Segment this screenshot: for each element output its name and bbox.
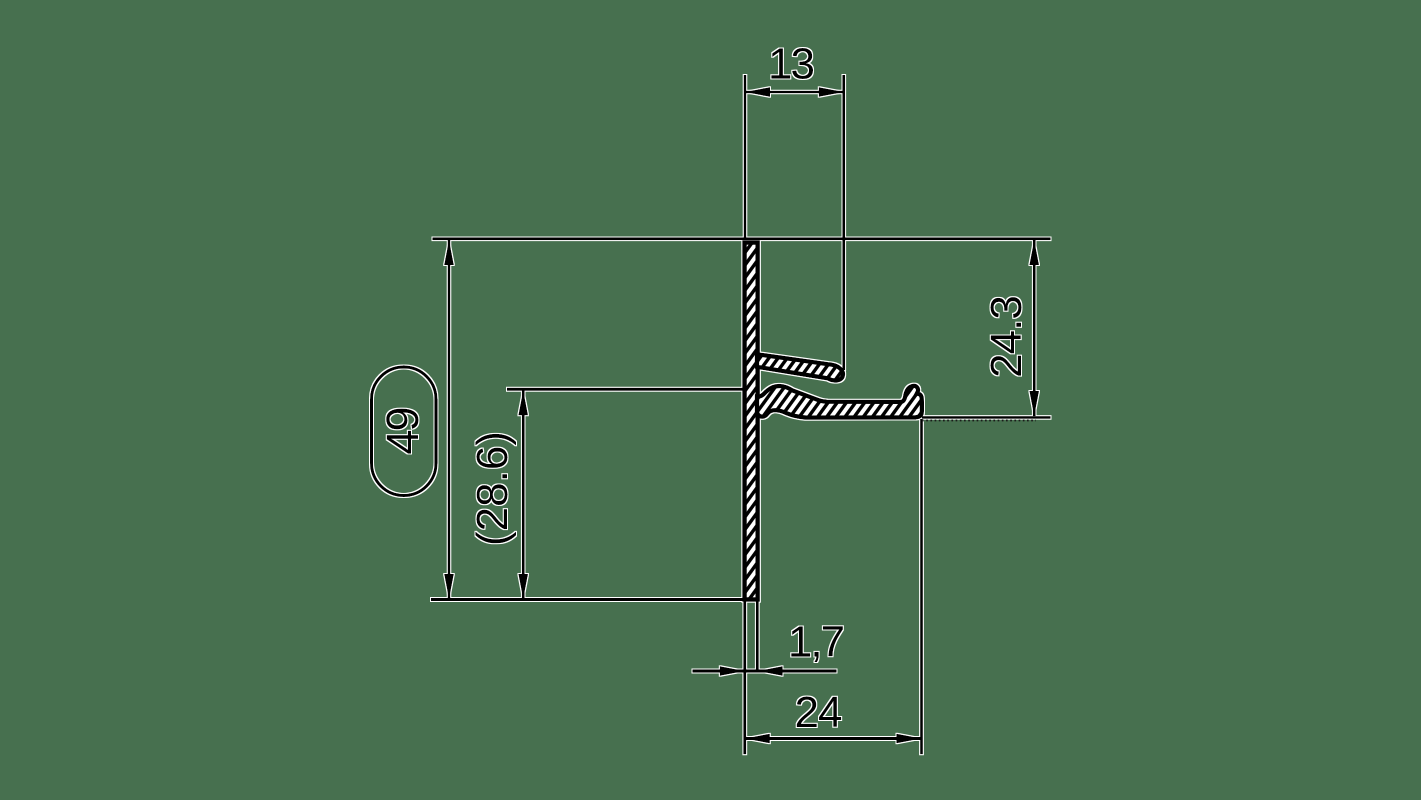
svg-text:24: 24 xyxy=(795,688,842,737)
svg-text:13: 13 xyxy=(768,40,813,89)
svg-text:(28.6): (28.6) xyxy=(468,431,517,546)
svg-text:1,7: 1,7 xyxy=(788,618,844,667)
svg-text:24.3: 24.3 xyxy=(982,296,1031,378)
svg-text:49: 49 xyxy=(377,408,428,454)
